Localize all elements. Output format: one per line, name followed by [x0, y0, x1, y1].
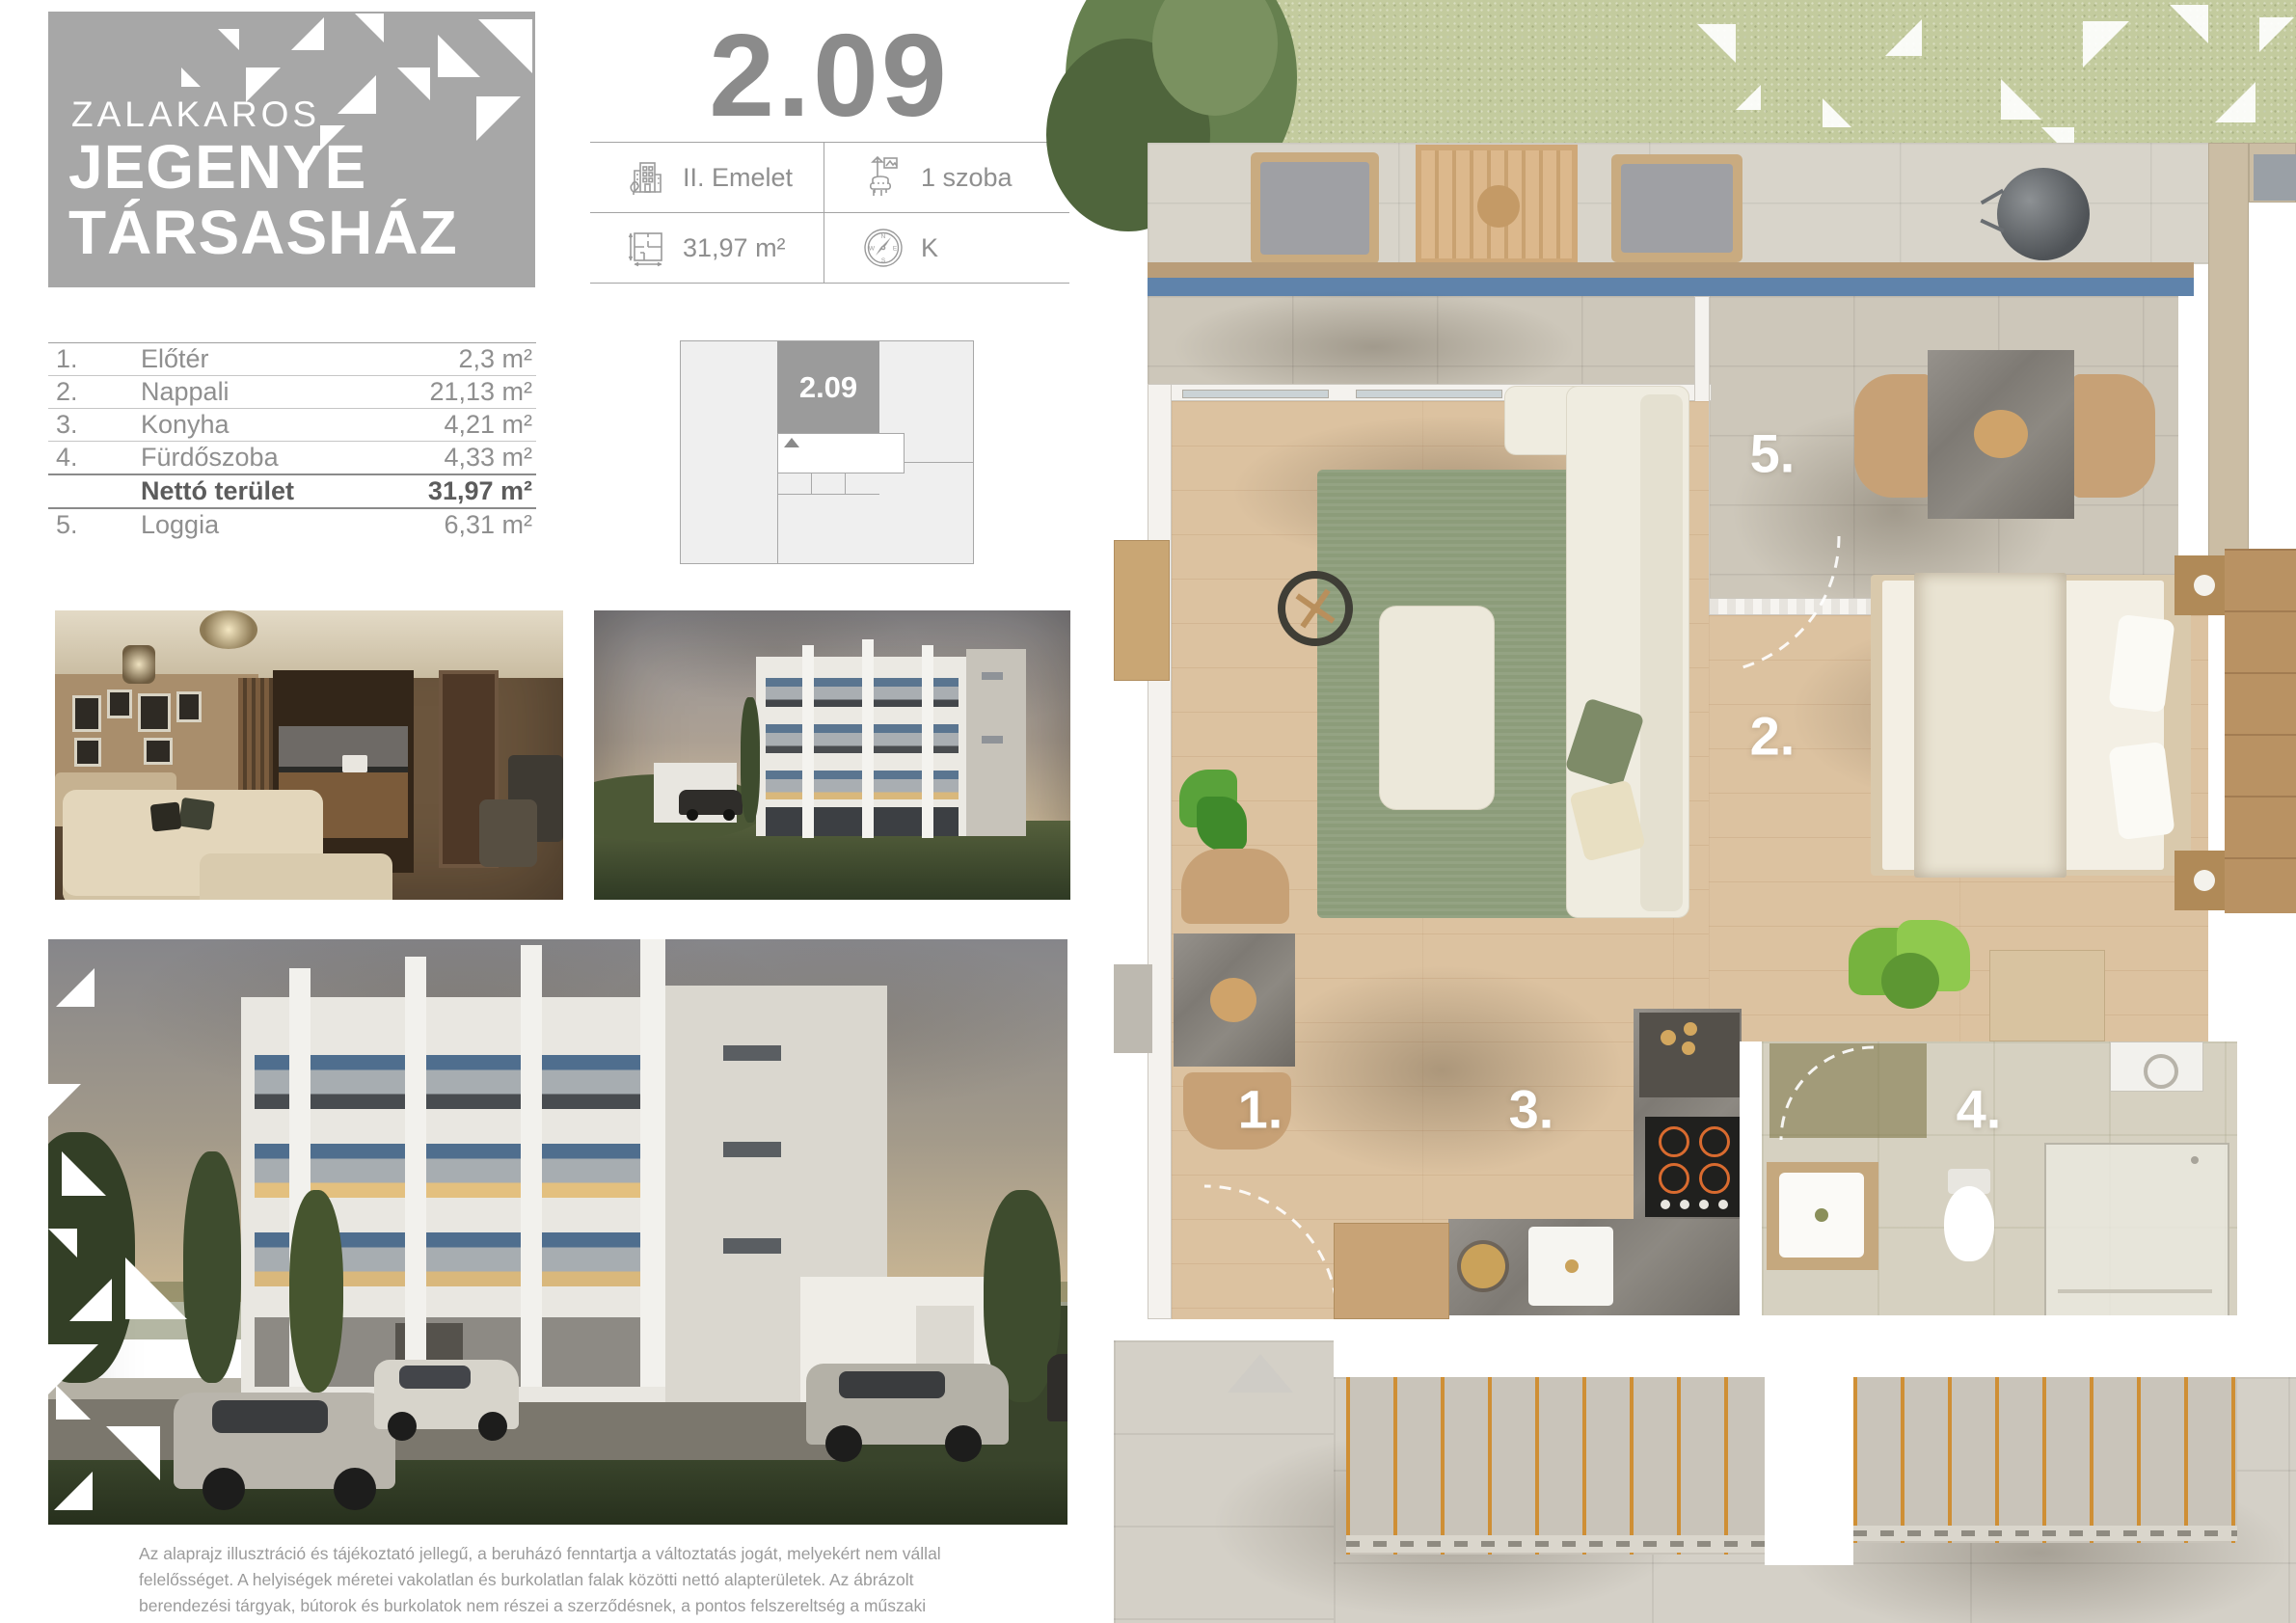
- logo-triangle-deco: [291, 17, 324, 50]
- keyplan-unit-cell: 2.09: [777, 341, 879, 433]
- floorplan-icon: [627, 228, 667, 268]
- render-gap: [1765, 1377, 1853, 1565]
- slat-panel: [1853, 1377, 2237, 1543]
- room-row-total: Nettó terület 31,97 m²: [48, 473, 536, 509]
- plan-label-4: 4.: [1957, 1078, 2002, 1141]
- room-num: 2.: [48, 377, 141, 407]
- brochure-page: ZALAKAROS JEGENYE TÁRSASHÁZ 2.09 II. Eme…: [0, 0, 2296, 1623]
- brand-location: ZALAKAROS: [71, 95, 320, 135]
- compass-n: N: [881, 233, 886, 240]
- render-gap: [1334, 1315, 2296, 1377]
- keyplan-highlight-cell: [777, 433, 905, 473]
- compass-e: E: [893, 246, 898, 253]
- room-row: 4. Fürdőszoba 4,33 m²: [48, 442, 536, 473]
- entrance-arrow: [1228, 1354, 1293, 1393]
- room-row: 3. Konyha 4,21 m²: [48, 409, 536, 442]
- spec-floor-value: II. Emelet: [683, 163, 793, 193]
- room-row: 1. Előtér 2,3 m²: [48, 343, 536, 376]
- exterior-large-photo: [48, 939, 1067, 1525]
- room-area: 2,3 m²: [458, 344, 536, 374]
- plan-label-2: 2.: [1750, 705, 1796, 768]
- keyplan-arrow-icon: [784, 438, 799, 447]
- compass-icon: N E S W: [861, 226, 905, 270]
- room-table: 1. Előtér 2,3 m² 2. Nappali 21,13 m² 3. …: [48, 342, 536, 541]
- floor-plan: 1. 2. 3. 4. 5.: [1114, 0, 2296, 1623]
- spec-area: 31,97 m²: [590, 213, 824, 284]
- disclaimer-text: Az alaprajz illusztráció és tájékoztató …: [139, 1541, 987, 1623]
- slat-ledge: [1346, 1535, 1765, 1553]
- room-name: Konyha: [141, 410, 444, 440]
- room-area: 21,13 m²: [429, 377, 536, 407]
- spec-rooms: 1 szoba: [824, 143, 1069, 213]
- room-num: 1.: [48, 344, 141, 374]
- building-photo: [594, 610, 1070, 900]
- room-icon: [861, 156, 905, 199]
- room-name: Előtér: [141, 344, 458, 374]
- spec-floor: II. Emelet: [590, 143, 824, 213]
- slat-panel: [1346, 1377, 1765, 1555]
- building-icon: [627, 157, 667, 198]
- plan-label-5: 5.: [1750, 422, 1796, 485]
- interior-photo: [55, 610, 563, 900]
- logo-triangle-deco: [397, 68, 430, 100]
- room-num: 5.: [48, 510, 141, 540]
- unit-number-title: 2.09: [665, 8, 993, 143]
- brand-logo: ZALAKAROS JEGENYE TÁRSASHÁZ: [48, 12, 535, 287]
- room-name: Nettó terület: [141, 476, 428, 506]
- key-plan: 2.09: [680, 340, 974, 564]
- compass-w: W: [869, 246, 876, 253]
- room-num: 3.: [48, 410, 141, 440]
- spec-table: II. Emelet 1 szoba: [590, 142, 1069, 284]
- logo-triangle-deco: [476, 96, 521, 141]
- room-area: 4,33 m²: [444, 443, 536, 473]
- room-name: Fürdőszoba: [141, 443, 444, 473]
- brand-name-line1: JEGENYE: [68, 135, 366, 200]
- keyplan-line: [905, 462, 973, 463]
- spec-rooms-value: 1 szoba: [921, 163, 1013, 193]
- room-num: 4.: [48, 443, 141, 473]
- spec-area-value: 31,97 m²: [683, 233, 786, 263]
- logo-triangle-deco: [338, 75, 376, 114]
- room-area: 31,97 m²: [428, 476, 536, 506]
- room-row: 2. Nappali 21,13 m²: [48, 376, 536, 409]
- compass-s: S: [881, 257, 886, 264]
- spec-orientation: N E S W K: [824, 213, 1069, 284]
- logo-triangle-deco: [218, 29, 239, 50]
- room-area: 6,31 m²: [444, 510, 536, 540]
- room-area: 4,21 m²: [444, 410, 536, 440]
- logo-triangle-deco: [438, 35, 480, 77]
- logo-triangle-deco: [181, 68, 201, 87]
- room-name: Nappali: [141, 377, 429, 407]
- room-name: Loggia: [141, 510, 444, 540]
- keyplan-small-cells: [777, 473, 879, 495]
- logo-triangle-deco: [355, 14, 384, 42]
- brand-name-line2: TÁRSASHÁZ: [68, 201, 458, 265]
- logo-triangle-deco: [478, 19, 532, 73]
- room-row: 5. Loggia 6,31 m²: [48, 509, 536, 541]
- plan-label-3: 3.: [1509, 1078, 1554, 1141]
- plan-label-1: 1.: [1238, 1078, 1283, 1141]
- entry-door: [1334, 1223, 1449, 1319]
- slat-ledge: [1853, 1526, 2237, 1541]
- spec-orientation-value: K: [921, 233, 938, 263]
- keyplan-unit-label: 2.09: [799, 370, 857, 405]
